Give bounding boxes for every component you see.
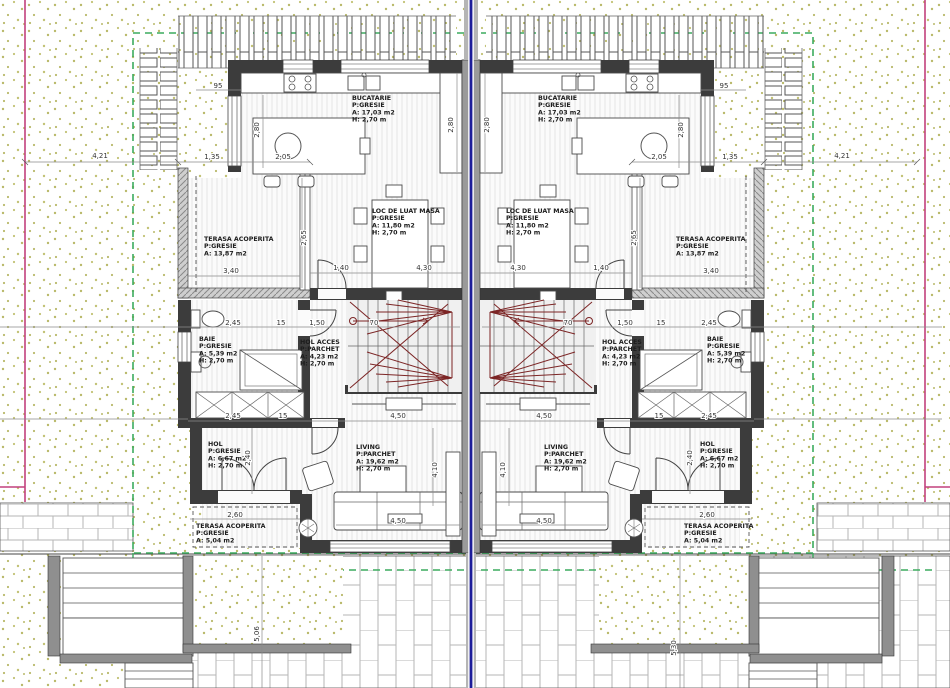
- dimension-text: 5,06: [253, 626, 261, 642]
- dimension-text: 4,30: [416, 264, 432, 272]
- room-label-hol-acces-left: HOL ACCESP:PARCHETA: 4,23 m2H: 2,70 m: [300, 339, 340, 368]
- dimension-text: 2,80: [483, 117, 491, 133]
- dimension-text: 4,21: [92, 152, 108, 160]
- dimension-text: 4,50: [390, 517, 406, 525]
- dimension-text: 2,65: [300, 230, 308, 246]
- dimension-text: 5,30: [670, 640, 678, 656]
- dimension-text: 70: [564, 319, 573, 327]
- dimension-text: 2,05: [651, 153, 667, 161]
- room-label-hol-acces-right: HOL ACCESP:PARCHETA: 4,23 m2H: 2,70 m: [602, 339, 642, 368]
- dimension-text: 2,80: [253, 122, 261, 138]
- dimension-text: 15: [277, 319, 286, 327]
- dimension-text: 3,40: [223, 267, 239, 275]
- dimension-text: 2,80: [677, 122, 685, 138]
- dimension-text: 4,21: [834, 152, 850, 160]
- dimension-text: 2,65: [630, 230, 638, 246]
- party-wall-axis: [468, 0, 474, 688]
- dimension-text: 2,45: [701, 412, 717, 420]
- dimension-text: 15: [657, 319, 666, 327]
- dimension-text: 15: [279, 412, 288, 420]
- floor-plan-canvas: BUCATARIEP:GRESIEA: 17,03 m2H: 2,70 mBUC…: [0, 0, 950, 688]
- dimension-text: 2,05: [275, 153, 291, 161]
- dimension-text: 70: [370, 319, 379, 327]
- dimension-text: 4,30: [510, 264, 526, 272]
- dimension-text: 3,40: [703, 267, 719, 275]
- dimension-text: 4,10: [431, 462, 439, 478]
- dimension-text: 2,80: [447, 117, 455, 133]
- floor-plan-page: BUCATARIEP:GRESIEA: 17,03 m2H: 2,70 mBUC…: [0, 0, 950, 688]
- dimension-text: 2,40: [686, 450, 694, 466]
- dimension-text: 1,40: [333, 264, 349, 272]
- dimension-text: 4,50: [536, 412, 552, 420]
- dimension-text: 4,50: [536, 517, 552, 525]
- dimension-text: 1,50: [617, 319, 633, 327]
- dimension-text: 1,40: [593, 264, 609, 272]
- dimension-text: 2,45: [701, 319, 717, 327]
- dimension-text: 95: [214, 82, 223, 90]
- dimension-text: 2,45: [225, 412, 241, 420]
- dimension-text: 2,45: [225, 319, 241, 327]
- dimension-text: 1,35: [722, 153, 738, 161]
- dimension-text: 2,60: [227, 511, 243, 519]
- dimension-text: 1,35: [204, 153, 220, 161]
- dimension-text: 1,50: [309, 319, 325, 327]
- dimension-text: 2,40: [244, 450, 252, 466]
- dimension-text: 2,60: [699, 511, 715, 519]
- dimension-text: 95: [720, 82, 729, 90]
- dimension-text: 15: [655, 412, 664, 420]
- dimension-text: 4,50: [390, 412, 406, 420]
- dimension-text: 4,10: [499, 462, 507, 478]
